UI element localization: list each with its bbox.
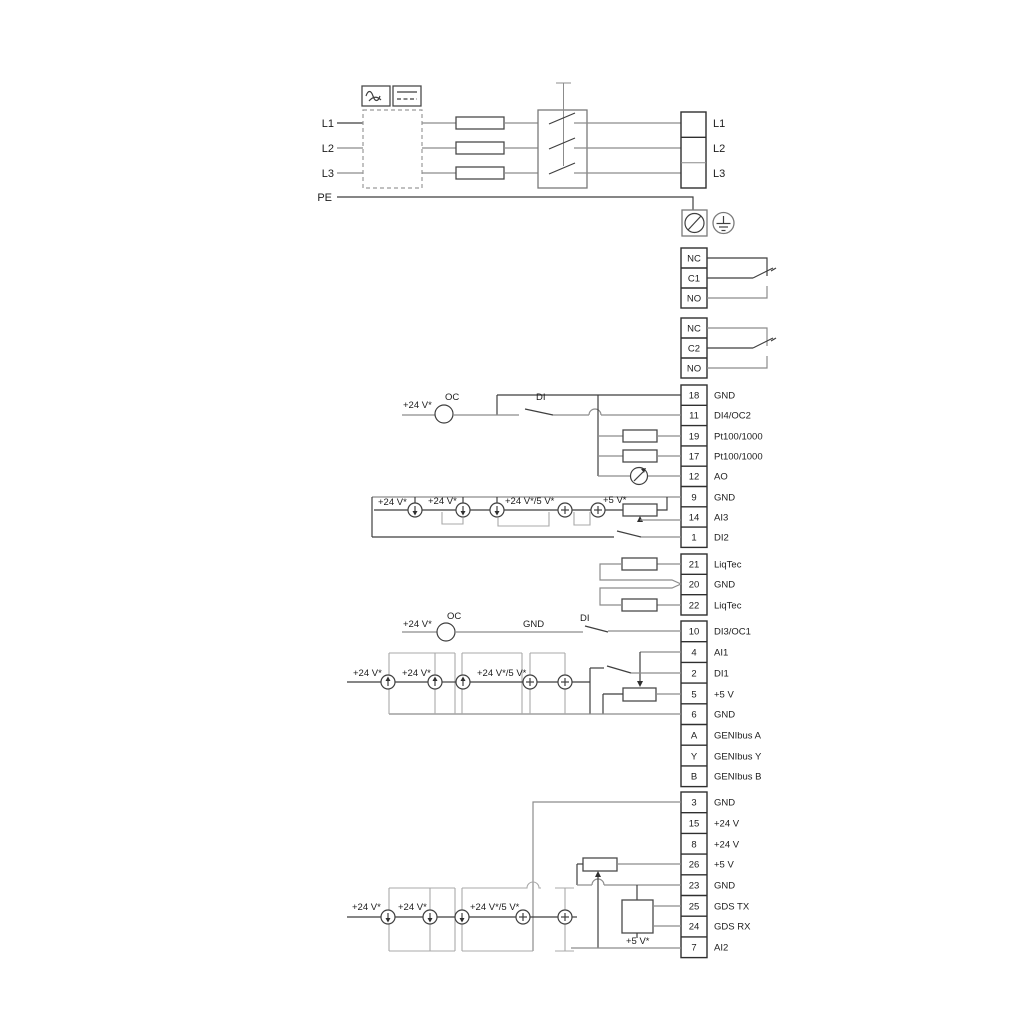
annotation-24v: +24 V*: [403, 400, 432, 411]
terminal-num: 14: [689, 513, 700, 524]
terminal-label: +24 V: [714, 819, 740, 830]
io-block-b: 10 DI3/OC1 4 AI1 2 DI1 5 +5 V 6 GND A GE…: [347, 611, 762, 787]
annotation-24v-5v: +24 V*/5 V*: [505, 496, 555, 507]
pt100-resistor-icon: [623, 450, 657, 462]
terminal-num: 9: [691, 493, 696, 504]
annotation-24v: +24 V*: [378, 497, 407, 508]
terminal-label: +5 V: [714, 860, 734, 871]
terminal-label: DI3/OC1: [714, 627, 751, 638]
relay1-nc: NC: [687, 254, 701, 265]
wiper-arrow-up: [595, 871, 601, 877]
annotation-di: DI: [536, 392, 546, 403]
terminal-label: DI1: [714, 669, 729, 680]
terminal-label: GENIbus Y: [714, 752, 762, 763]
annotation-gnd: GND: [523, 619, 544, 630]
terminal-num: 15: [689, 819, 700, 830]
terminal-label: GND: [714, 580, 735, 591]
terminal-num: 11: [689, 411, 699, 422]
terminal-num: 10: [689, 627, 700, 638]
option-bracket: [574, 512, 590, 525]
potentiometer-icon: [623, 504, 657, 516]
terminal-label: Pt100/1000: [714, 432, 763, 443]
relay2-nc: NC: [687, 324, 701, 335]
terminal-num: 23: [689, 881, 700, 892]
wiper-arrow-up: [637, 516, 643, 522]
wire-gnd3: [533, 802, 681, 951]
annotation-di: DI: [580, 613, 590, 624]
terminal-label: +5 V: [714, 690, 734, 701]
liqtec-block: 21 LiqTec 20 GND 22 LiqTec: [600, 554, 742, 615]
terminal-label: Pt100/1000: [714, 452, 763, 463]
wiring-diagram: L1 L2 L3 PE: [0, 0, 1024, 1024]
dc-symbol: [393, 86, 421, 106]
option-bracket: [442, 512, 463, 524]
contactor-box: [538, 110, 587, 188]
terminal-num: 12: [689, 472, 700, 483]
relay2-c2: C2: [688, 344, 700, 355]
arrow-up: [433, 677, 438, 682]
arrow-down: [460, 918, 465, 923]
relay2-section: NC C2 NO: [681, 318, 776, 378]
terminal-num: 1: [691, 533, 696, 544]
relay1-no: NO: [687, 294, 701, 305]
wiper-arrow-down: [637, 681, 643, 687]
annotation-24v: +24 V*: [428, 496, 457, 507]
label-pe-left: PE: [317, 192, 332, 204]
terminal-label: GND: [714, 881, 735, 892]
pt100-resistor-icon: [623, 430, 657, 442]
terminal-num: Y: [691, 752, 698, 763]
annotation-24v: +24 V*: [403, 619, 432, 630]
mains-terminal-block: [681, 112, 706, 188]
di-switch-blade-icon: [607, 666, 631, 673]
annotation-oc: OC: [445, 392, 459, 403]
terminal-label: AO: [714, 472, 728, 483]
io-block-c: 3 GND 15 +24 V 8 +24 V 26 +5 V 23 GND 25…: [347, 792, 751, 958]
arrow-down: [461, 511, 466, 516]
di-switch-blade-icon: [617, 531, 641, 537]
terminal-num: B: [691, 772, 697, 783]
terminal-num: 24: [689, 922, 700, 933]
open-collector-icon: [437, 623, 455, 641]
option-bracket-jump: [462, 882, 541, 888]
terminal-num: 2: [691, 669, 696, 680]
terminal-num: 25: [689, 902, 700, 913]
annotation-24v: +24 V*: [398, 902, 427, 913]
terminal-num: 8: [691, 840, 696, 851]
annotation-24v-5v: +24 V*/5 V*: [470, 902, 520, 913]
annotation-24v-5v: +24 V*/5 V*: [477, 668, 527, 679]
annotation-oc: OC: [447, 611, 461, 622]
arrow-up: [461, 677, 466, 682]
liqtec-sensor-icon: [622, 599, 657, 611]
terminal-label: GENIbus A: [714, 731, 762, 742]
option-bracket: [498, 512, 549, 526]
terminal-num: 4: [691, 648, 696, 659]
terminal-num: 22: [689, 601, 700, 612]
arrow-down: [428, 918, 433, 923]
terminal-num: 21: [689, 560, 700, 571]
terminal-num: 7: [691, 943, 696, 954]
arrow-down: [386, 918, 391, 923]
converter-box: [363, 110, 422, 188]
io-block-a: 18 GND 11 DI4/OC2 19 Pt100/1000 17 Pt100…: [372, 385, 763, 547]
relay2-no: NO: [687, 364, 701, 375]
terminal-num: A: [691, 731, 698, 742]
wire-jump: [589, 409, 601, 415]
open-collector-icon: [435, 405, 453, 423]
relay1-blade-icon: [753, 268, 773, 278]
terminal-label: LiqTec: [714, 560, 742, 571]
label-l1-right: L1: [713, 118, 725, 130]
terminal-num: 26: [689, 860, 700, 871]
relay2-nc-wire: [707, 328, 767, 346]
terminal-num: 20: [689, 580, 700, 591]
annotation-24v: +24 V*: [352, 902, 381, 913]
wiring-diagram-page: L1 L2 L3 PE: [0, 0, 1024, 1024]
pe-wire: [337, 197, 693, 210]
terminal-label: AI1: [714, 648, 728, 659]
di-switch-blade-icon: [525, 409, 553, 415]
relay1-section: NC C1 NO: [681, 248, 776, 308]
di-switch-blade-icon: [585, 626, 608, 632]
annotation-5v: +5 V*: [626, 936, 650, 947]
terminal-label: GND: [714, 798, 735, 809]
relay1-c1: C1: [688, 274, 700, 285]
terminal-label: DI4/OC2: [714, 411, 751, 422]
fuse-l2-icon: [456, 142, 504, 154]
gds-sensor-box: [622, 900, 653, 933]
terminal-num: 18: [689, 391, 700, 402]
power-section: L1 L2 L3 PE: [317, 83, 734, 236]
terminal-label: GND: [714, 493, 735, 504]
terminal-num: 19: [689, 432, 700, 443]
terminal-label: GDS TX: [714, 902, 750, 913]
label-l3-right: L3: [713, 168, 725, 180]
label-l2-left: L2: [322, 143, 334, 155]
terminal-label: DI2: [714, 533, 729, 544]
potentiometer-icon: [583, 858, 617, 871]
fuse-l1-icon: [456, 117, 504, 129]
arrow-down: [413, 511, 418, 516]
relay1-nc-wire: [707, 258, 767, 276]
label-l3-left: L3: [322, 168, 334, 180]
terminal-label: GND: [714, 391, 735, 402]
terminal-label: AI2: [714, 943, 728, 954]
liqtec-sensor-icon: [622, 558, 657, 570]
terminal-num: 17: [689, 452, 700, 463]
terminal-label: GDS RX: [714, 922, 751, 933]
terminal-num: 5: [691, 690, 696, 701]
terminal-num: 3: [691, 798, 696, 809]
terminal-label: GND: [714, 710, 735, 721]
meter-needle: [634, 472, 643, 481]
annotation-24v: +24 V*: [402, 668, 431, 679]
label-l1-left: L1: [322, 118, 334, 130]
arrow-up: [386, 677, 391, 682]
terminal-label: AI3: [714, 513, 728, 524]
terminal-label: LiqTec: [714, 601, 742, 612]
arrow-down: [495, 511, 500, 516]
label-l2-right: L2: [713, 143, 725, 155]
relay2-blade-icon: [753, 338, 773, 348]
relay1-no-wire: [707, 286, 767, 298]
fuse-l3-icon: [456, 167, 504, 179]
terminal-label: +24 V: [714, 840, 740, 851]
annotation-24v: +24 V*: [353, 668, 382, 679]
wire: [657, 497, 667, 510]
potentiometer-icon: [623, 688, 656, 701]
terminal-label: GENIbus B: [714, 772, 762, 783]
terminal-num: 6: [691, 710, 696, 721]
relay2-no-wire: [707, 356, 767, 368]
